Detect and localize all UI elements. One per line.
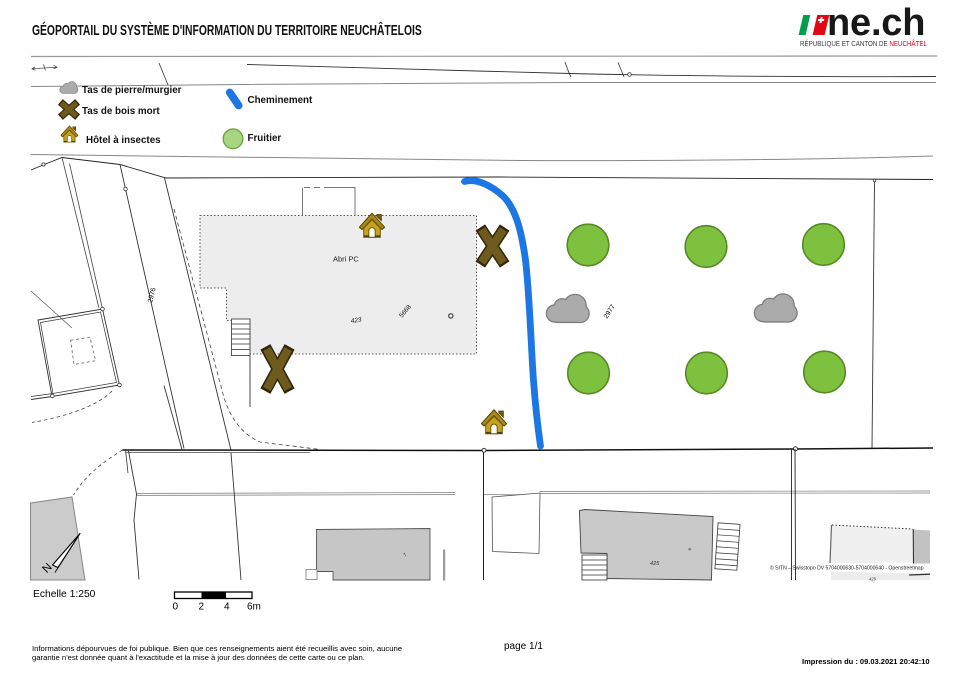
svg-text:6m: 6m xyxy=(247,602,261,613)
svg-text:4: 4 xyxy=(224,602,230,613)
svg-text:425: 425 xyxy=(650,561,660,567)
svg-text:© SITN – Swisstopo DV 57040006: © SITN – Swisstopo DV 5704000630-5704000… xyxy=(770,565,924,572)
svg-text:429: 429 xyxy=(869,577,877,582)
svg-text:0: 0 xyxy=(173,602,179,613)
svg-text:Abri PC: Abri PC xyxy=(333,255,359,264)
svg-text:2976: 2976 xyxy=(147,287,158,304)
svg-text:2977: 2977 xyxy=(603,303,617,320)
svg-text:2: 2 xyxy=(199,602,205,613)
